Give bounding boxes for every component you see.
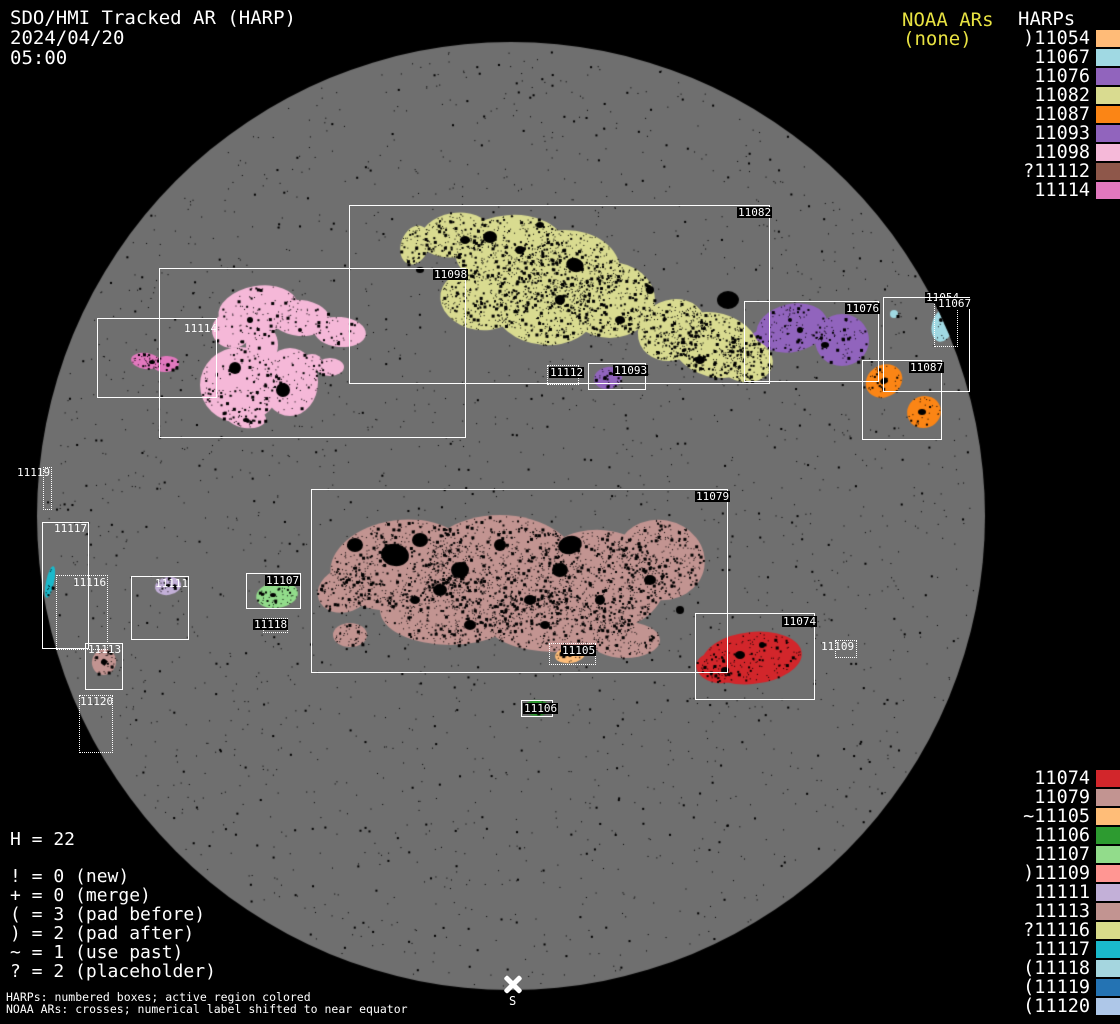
harp-box-label-11087: 11087 (909, 362, 944, 373)
harp-box-11079 (311, 489, 728, 673)
harp-annotations-layer: 1105411067110761108211087110931109811112… (0, 0, 1120, 1024)
harp-box-label-11076: 11076 (845, 303, 880, 314)
harp-box-label-11079: 11079 (695, 491, 730, 502)
harp-box-label-11112: 11112 (549, 367, 584, 378)
harp-box-11117 (42, 522, 89, 649)
harp-box-label-11120: 11120 (80, 696, 113, 707)
harp-box-label-11119: 11119 (17, 467, 50, 478)
harp-box-label-11109: 11109 (821, 641, 854, 652)
harp-box-label-11093: 11093 (613, 365, 648, 376)
harp-box-label-11067: 11067 (937, 298, 972, 309)
harp-box-label-11105: 11105 (561, 645, 596, 656)
harp-box-label-11106: 11106 (523, 703, 558, 714)
harp-box-label-11114: 11114 (184, 323, 217, 334)
harp-box-label-11117: 11117 (54, 523, 87, 534)
harp-box-label-11111: 11111 (155, 578, 188, 589)
harp-box-label-11082: 11082 (737, 207, 772, 218)
solar-harp-plot: SDO/HMI Tracked AR (HARP) 2024/04/20 05:… (0, 0, 1120, 1024)
harp-box-label-11118: 11118 (253, 619, 288, 630)
harp-box-label-11098: 11098 (433, 269, 468, 280)
harp-box-label-11107: 11107 (265, 575, 300, 586)
harp-box-label-11074: 11074 (782, 616, 817, 627)
